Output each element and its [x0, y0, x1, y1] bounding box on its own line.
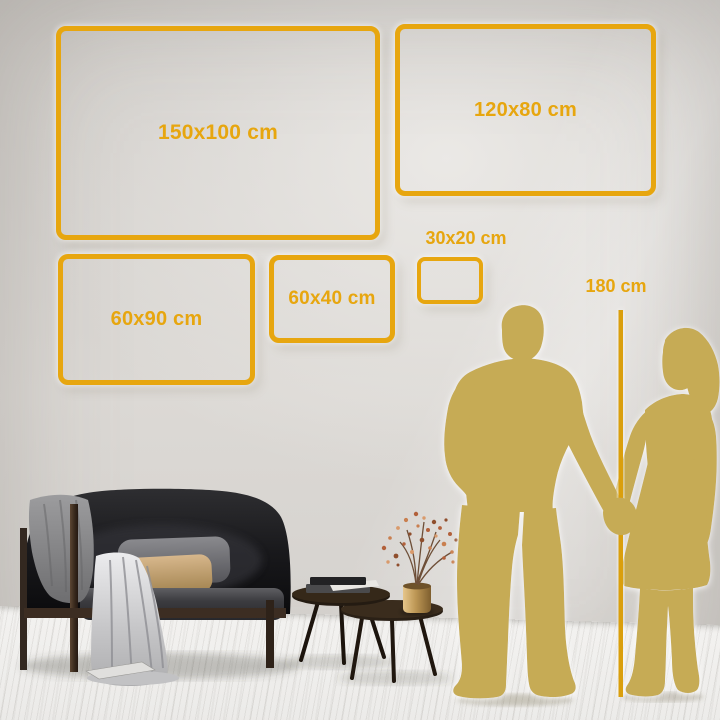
clasped-hands	[603, 498, 637, 535]
size-label-60x90: 60x90 cm	[111, 308, 203, 331]
book-top	[310, 577, 366, 585]
vase-with-branches	[382, 512, 458, 616]
sofa-frame-left-post	[20, 528, 27, 670]
man-left-leg	[453, 505, 520, 698]
table2-leg	[392, 620, 394, 681]
size-label-60x40: 60x40 cm	[288, 288, 375, 310]
size-guide-image: 150x100 cm 120x80 cm 60x90 cm 60x40 cm 3…	[0, 0, 720, 720]
table2-leg	[420, 616, 435, 674]
height-label-180: 180 cm	[570, 276, 662, 297]
dried-branches	[400, 522, 452, 585]
coffee-tables	[285, 512, 458, 685]
size-label-30x20: 30x20 cm	[410, 228, 522, 249]
sofa-frame-front-post	[70, 504, 78, 672]
man-right-leg	[522, 508, 576, 697]
size-label-120x80: 120x80 cm	[474, 99, 577, 122]
size-frame-30x20	[417, 257, 483, 304]
man-silhouette	[444, 305, 627, 698]
size-frame-60x40: 60x40 cm	[269, 255, 395, 343]
sofa-frame-right-leg	[266, 600, 274, 668]
size-label-150x100: 150x100 cm	[158, 121, 278, 145]
man-head	[502, 305, 544, 361]
sofa-illustration	[20, 489, 300, 686]
vase-body	[403, 586, 431, 613]
size-frame-60x90: 60x90 cm	[58, 254, 255, 385]
size-frame-120x80: 120x80 cm	[395, 24, 656, 196]
size-frame-150x100: 150x100 cm	[56, 26, 380, 240]
table2-leg	[352, 618, 362, 678]
woman-legs	[626, 588, 700, 697]
table1-leg	[301, 602, 318, 660]
